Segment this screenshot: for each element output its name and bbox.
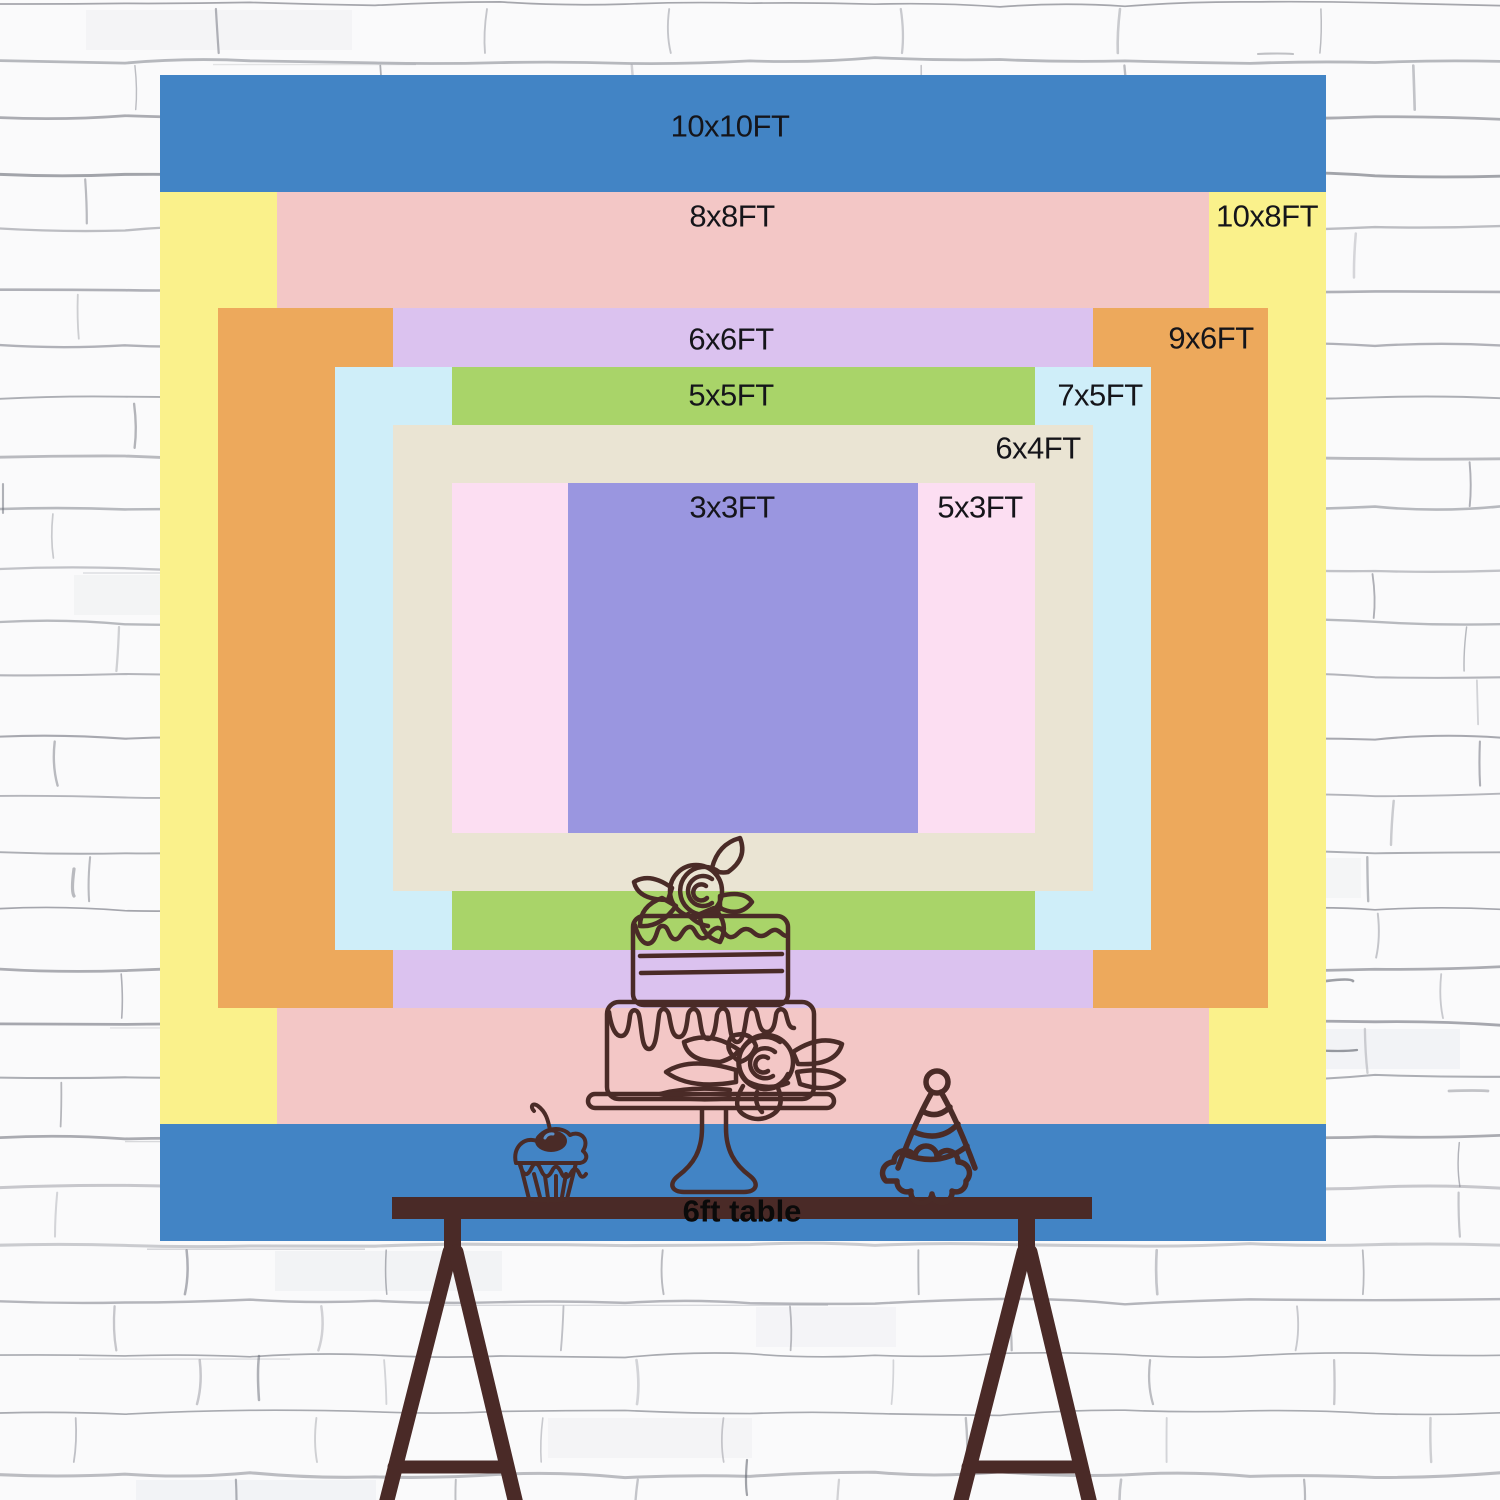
backdrop-size-chart-poster: 10x10FT10x8FT8x8FT9x6FT6x6FT7x5FT5x5FT6x…	[0, 0, 1500, 1500]
party-hat-icon	[883, 1071, 975, 1203]
cupcake-icon	[515, 1105, 586, 1201]
cake-stand-icon	[588, 1094, 834, 1192]
dessert-table-illustration	[0, 0, 1500, 1500]
table-size-label: 6ft table	[683, 1196, 802, 1227]
trestle-legs-icon	[386, 1252, 1090, 1500]
tiered-cake-icon	[607, 916, 814, 1099]
